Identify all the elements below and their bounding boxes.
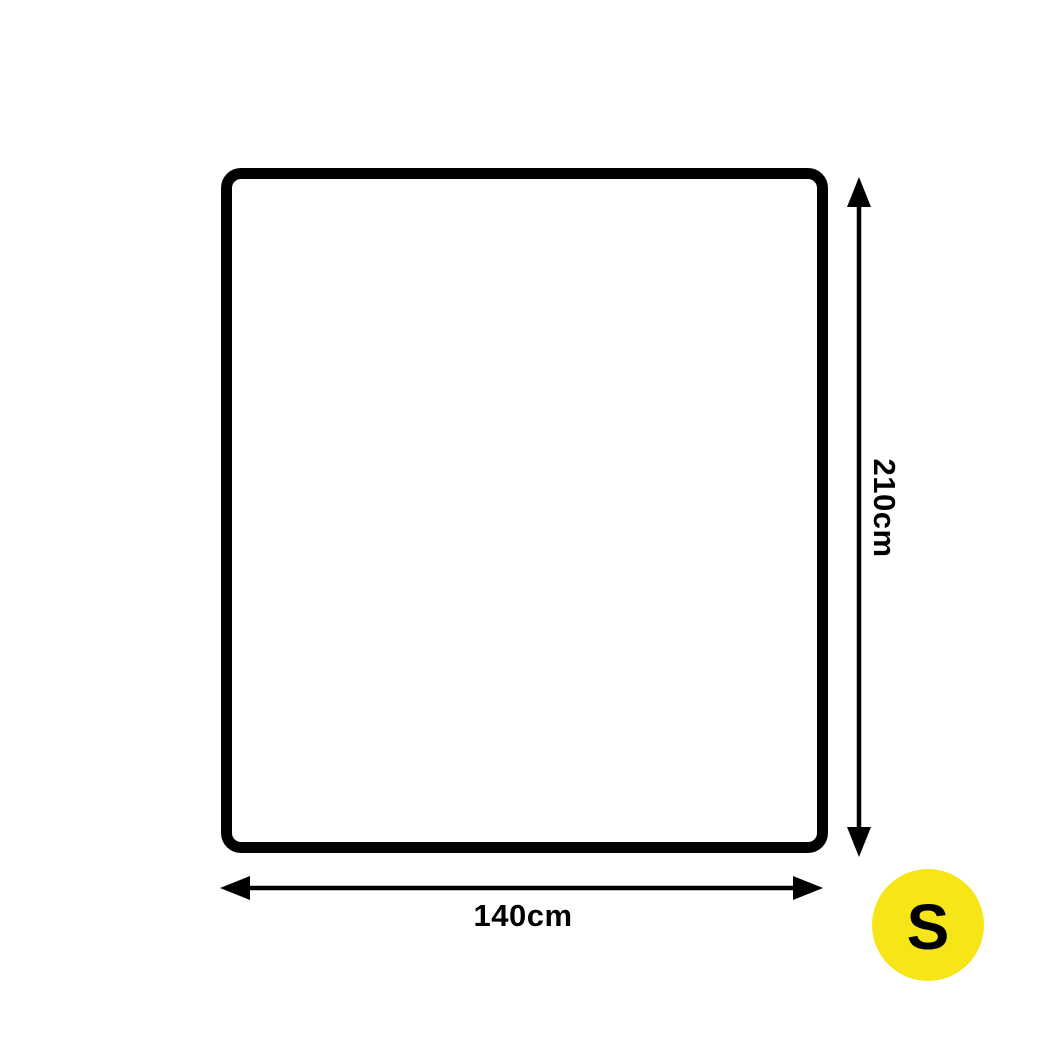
arrow-up-icon <box>847 177 871 207</box>
arrow-down-icon <box>847 827 871 857</box>
size-badge: S <box>872 869 984 981</box>
width-dimension-label: 140cm <box>373 898 673 934</box>
arrow-left-icon <box>220 876 250 900</box>
size-badge-label: S <box>907 891 950 963</box>
product-outline <box>221 168 828 853</box>
size-diagram: 140cm 210cm S <box>0 0 1050 1050</box>
arrow-right-icon <box>793 876 823 900</box>
width-dimension-arrow <box>220 876 823 900</box>
height-dimension-label: 210cm <box>864 358 904 658</box>
